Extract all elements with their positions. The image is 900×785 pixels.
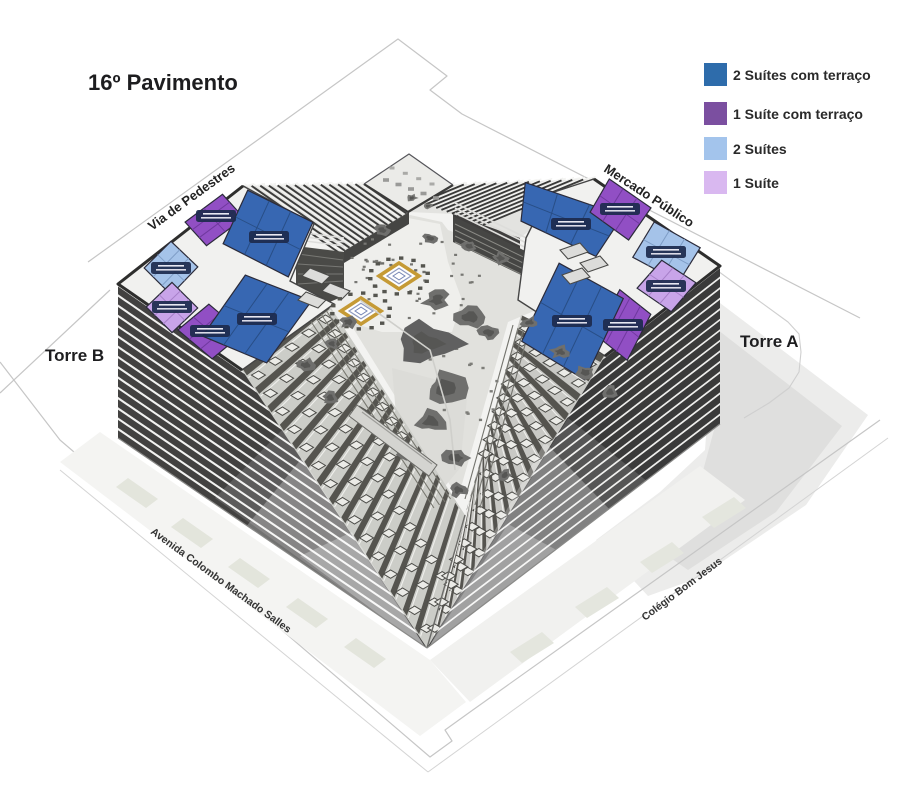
svg-text:16º Pavimento: 16º Pavimento [88, 70, 238, 95]
svg-text:1 Suíte: 1 Suíte [733, 175, 779, 191]
svg-text:2 Suítes: 2 Suítes [733, 141, 787, 157]
svg-text:Torre B: Torre B [45, 346, 104, 365]
svg-text:Torre A: Torre A [740, 332, 799, 351]
svg-text:1 Suíte com terraço: 1 Suíte com terraço [733, 106, 863, 122]
svg-text:2 Suítes com terraço: 2 Suítes com terraço [733, 67, 871, 83]
